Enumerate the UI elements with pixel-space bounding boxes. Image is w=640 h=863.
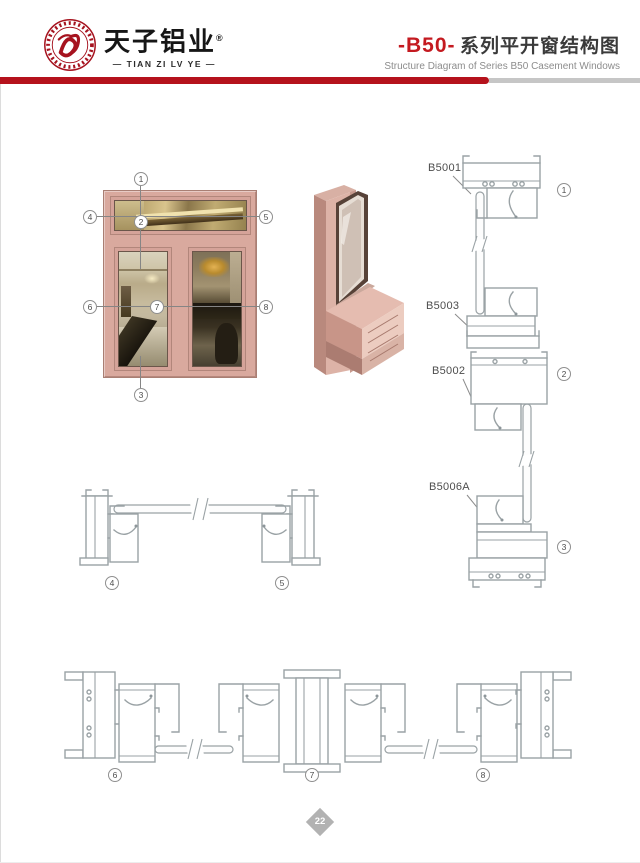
header-rule-gray [489,78,640,83]
section-marker-7: 7 [305,768,319,782]
horizontal-section-upper-drawing [62,480,338,588]
section-marker-4: 4 [105,576,119,590]
profile-b5006a-drawing [477,496,547,558]
horizontal-section-lower-drawing [55,662,585,780]
glass-break-symbol [422,739,440,760]
seal-icon [42,17,98,73]
glass-break-symbol [190,498,211,520]
glass-reflection [199,257,229,278]
brand-wordmark: 天子铝业® — TIAN ZI LV YE — [104,24,225,69]
brand-name-cn: 天子铝业® [104,24,225,56]
callout-4: 4 [83,210,97,224]
profile-sash-drawing [475,404,521,430]
registered-mark: ® [216,33,225,43]
profile-sill-frame-drawing [469,558,545,587]
vertical-section-drawing [425,150,625,620]
callout-1: 1 [134,172,148,186]
profile-label-b5001: B5001 [428,162,461,174]
callout-line-horizontal-upper [97,216,259,217]
profile-3d-corner-view [298,183,413,381]
brand-name-cn-text: 天子铝业 [104,27,216,57]
callout-3: 3 [134,388,148,402]
glass-reflection [121,286,130,317]
right-casement-sash [188,247,246,371]
jamb-profile-left [80,490,138,565]
section-marker-3: 3 [557,540,571,554]
section-marker-5: 5 [275,576,289,590]
frame-profile [65,672,120,758]
mullion-profile [284,670,340,772]
section-marker-6: 6 [108,768,122,782]
callout-2: 2 [134,215,148,229]
glass-reflection [144,273,160,284]
section-marker-2: 2 [557,367,571,381]
section-marker-8: 8 [476,768,490,782]
vertical-section-diagram: B5001 B5003 B5002 B5006A 1 2 3 [425,150,625,620]
casement-window-illustration [103,190,257,378]
page-title: -B50- 系列平开窗结构图 Structure Diagram of Seri… [384,31,620,72]
profile-b5002-drawing [471,352,547,404]
glass-reflection [119,269,167,271]
glass-break-symbol [186,739,204,760]
glass-reflection [215,323,238,364]
right-casement-glass [192,251,242,367]
profile-label-b5003: B5003 [426,300,459,312]
callout-7: 7 [150,300,164,314]
callout-line-horizontal-lower [97,306,259,307]
profile-label-b5002: B5002 [432,365,465,377]
header-rule-red [0,77,489,84]
callout-8: 8 [259,300,273,314]
section-marker-1: 1 [557,183,571,197]
catalog-page: 天子铝业® — TIAN ZI LV YE — -B50- 系列平开窗结构图 S… [0,0,640,863]
profile-label-b5006a: B5006A [429,481,470,493]
series-code: -B50- [398,34,456,57]
title-cn: 系列平开窗结构图 [460,36,620,57]
profile-b5001-drawing [463,156,540,219]
horizontal-section-lower: 6 7 8 [55,662,585,784]
horizontal-section-upper: 4 5 [62,480,338,595]
callout-line-vertical-bottom [140,356,141,388]
brand-seal-logo [42,17,98,73]
page-edge-left [0,84,1,863]
title-en: Structure Diagram of Series B50 Casement… [384,61,620,72]
callout-5: 5 [259,210,273,224]
brand-name-en: — TIAN ZI LV YE — [104,59,225,69]
page-number: 22 [310,816,330,827]
profile-3d-icon [298,183,413,381]
callout-6: 6 [83,300,97,314]
